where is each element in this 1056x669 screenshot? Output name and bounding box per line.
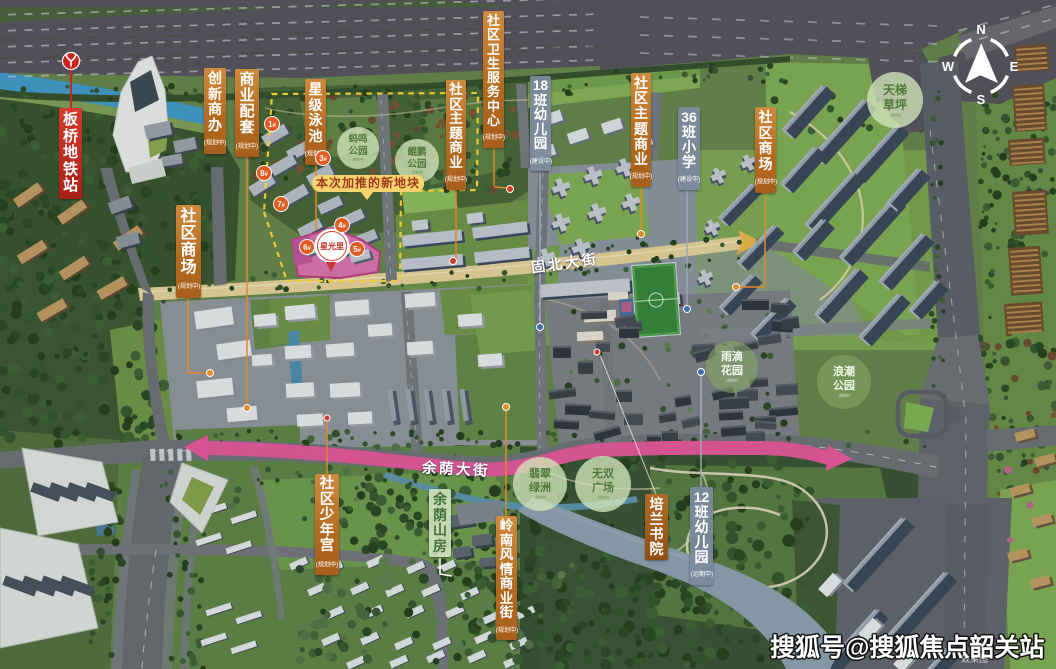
svg-text:W: W <box>942 59 955 74</box>
svg-text:N: N <box>976 22 985 37</box>
svg-text:S: S <box>977 92 986 107</box>
svg-text:E: E <box>1010 59 1019 74</box>
